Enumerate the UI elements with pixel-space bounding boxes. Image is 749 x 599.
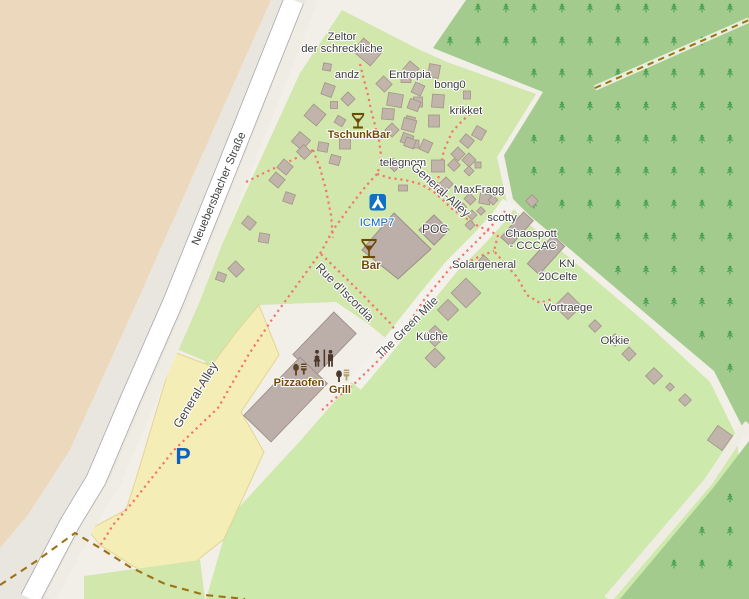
svg-text:ICMP7: ICMP7 xyxy=(360,217,395,229)
svg-text:- CCCAC: - CCCAC xyxy=(509,240,556,252)
svg-text:krikket: krikket xyxy=(450,105,483,117)
svg-text:Pizzaofen: Pizzaofen xyxy=(274,377,325,389)
svg-text:TschunkBar: TschunkBar xyxy=(328,129,391,141)
svg-text:POC: POC xyxy=(422,222,448,236)
svg-text:Bar: Bar xyxy=(361,260,381,272)
svg-text:P: P xyxy=(175,443,190,469)
svg-text:bong0: bong0 xyxy=(434,79,465,91)
svg-text:Okkie: Okkie xyxy=(601,335,630,347)
svg-text:Zeltor: Zeltor xyxy=(328,31,357,43)
svg-text:scotty: scotty xyxy=(487,212,517,224)
svg-text:Entropia: Entropia xyxy=(389,69,432,81)
svg-text:andz: andz xyxy=(335,69,360,81)
svg-text:Küche: Küche xyxy=(416,331,448,343)
svg-text:Solargeneral: Solargeneral xyxy=(452,259,516,271)
svg-text:KN: KN xyxy=(559,258,575,270)
svg-text:Grill: Grill xyxy=(329,384,351,396)
svg-text:20Celte: 20Celte xyxy=(539,271,578,283)
svg-text:der schreckliche: der schreckliche xyxy=(301,43,383,55)
svg-text:Vortraege: Vortraege xyxy=(544,302,593,314)
svg-text:Chaospott: Chaospott xyxy=(505,228,557,240)
svg-text:MaxFragg: MaxFragg xyxy=(454,184,505,196)
